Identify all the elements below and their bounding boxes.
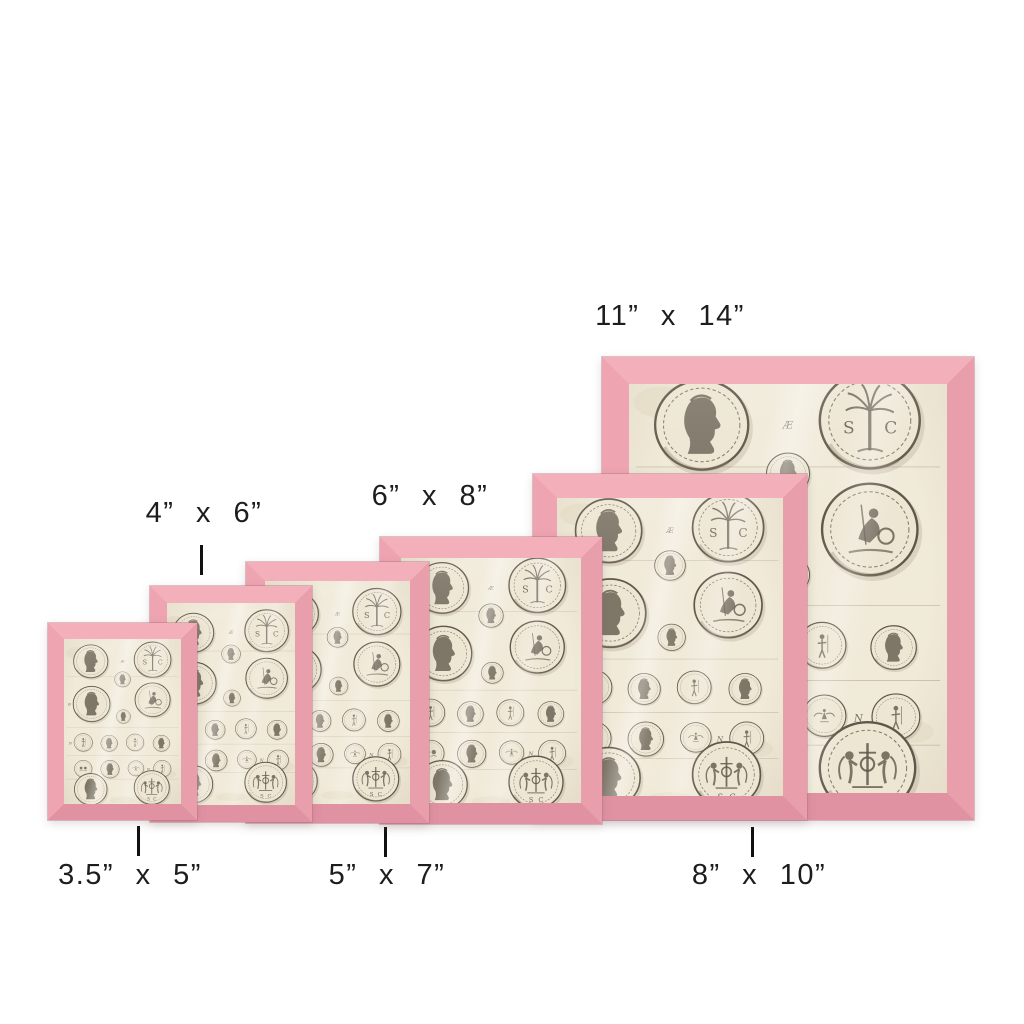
size-label-6x8: 6” x 8”	[372, 481, 489, 511]
size-label-11x14: 11” x 14”	[595, 301, 745, 331]
frame-3-5x5	[48, 623, 197, 820]
coin-print	[64, 639, 181, 804]
coin-plate-art	[64, 639, 181, 804]
size-label-4x6: 4” x 6”	[146, 498, 263, 528]
tick-5x7	[384, 827, 387, 857]
tick-3-5x5	[137, 826, 140, 856]
tick-8x10	[751, 827, 754, 857]
tick-4x6	[200, 545, 203, 575]
size-label-3-5x5: 3.5” x 5”	[58, 860, 202, 890]
size-label-8x10: 8” x 10”	[692, 860, 826, 890]
size-label-5x7: 5” x 7”	[329, 860, 446, 890]
stage: S C	[0, 0, 1024, 1024]
